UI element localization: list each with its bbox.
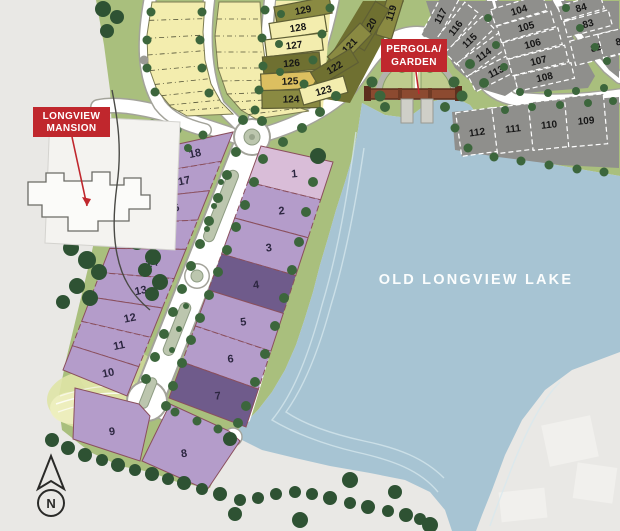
tree [275, 40, 283, 48]
tree [240, 200, 250, 210]
lake-name-label: OLD LONGVIEW LAKE [379, 272, 573, 288]
tree [100, 24, 114, 38]
tree [213, 267, 223, 277]
tree [168, 307, 178, 317]
tree [457, 91, 468, 102]
tree [375, 91, 386, 102]
svg-text:1: 1 [291, 168, 298, 181]
tree [183, 303, 189, 309]
tree [260, 349, 270, 359]
tree [297, 123, 307, 133]
tree [195, 239, 205, 249]
svg-text:2: 2 [278, 205, 285, 218]
tree [223, 432, 237, 446]
tree [199, 131, 208, 140]
tree [308, 177, 318, 187]
svg-text:5: 5 [240, 316, 247, 329]
dock-pier [421, 99, 433, 123]
tree [294, 237, 304, 247]
svg-text:LONGVIEW: LONGVIEW [43, 111, 101, 122]
tree [78, 251, 96, 269]
tree [249, 177, 259, 187]
svg-text:PERGOLA/: PERGOLA/ [386, 44, 441, 55]
site-plan-map: 1291281271261251241191201211221231171161… [0, 0, 620, 531]
tree [177, 476, 191, 490]
tree [138, 263, 152, 277]
tree [110, 10, 124, 24]
tree [501, 106, 509, 114]
tree [222, 245, 232, 255]
tree [198, 64, 207, 73]
tree [326, 4, 335, 13]
tree [306, 488, 318, 500]
tree [177, 358, 187, 368]
svg-text:11: 11 [112, 339, 126, 353]
tree [159, 329, 169, 339]
tree [270, 321, 280, 331]
tree [69, 278, 85, 294]
tree [45, 433, 59, 447]
tree [517, 157, 526, 166]
svg-text:125: 125 [281, 76, 299, 88]
tree [545, 161, 554, 170]
svg-text:7: 7 [214, 390, 221, 403]
tree [276, 68, 284, 76]
tree [603, 57, 611, 65]
tree [151, 88, 160, 97]
tree [91, 264, 107, 280]
tree [186, 261, 196, 271]
tree [544, 89, 552, 97]
tree [168, 381, 178, 391]
tree [171, 408, 180, 417]
tree [213, 487, 227, 501]
svg-text:10: 10 [101, 366, 115, 380]
tree [193, 417, 202, 426]
tree [490, 153, 499, 162]
tree [196, 483, 208, 495]
tree [145, 249, 161, 265]
tree [204, 290, 214, 300]
tree [301, 207, 311, 217]
tree [129, 464, 141, 476]
tree [609, 97, 617, 105]
tree [82, 290, 98, 306]
svg-text:17: 17 [177, 174, 191, 188]
tree [484, 14, 492, 22]
tree [234, 494, 246, 506]
svg-text:112: 112 [468, 126, 486, 139]
tree [145, 287, 159, 301]
tree [600, 84, 608, 92]
lot-112: 112 [456, 108, 499, 157]
site-plan: 1291281271261251241191201211221231171161… [0, 0, 620, 531]
tree [331, 91, 341, 101]
tree [141, 374, 151, 384]
svg-text:12: 12 [123, 311, 137, 325]
tree [573, 165, 582, 174]
tree [289, 486, 301, 498]
tree [143, 36, 152, 45]
tree [464, 144, 473, 153]
tree [214, 425, 223, 434]
tree [449, 77, 460, 88]
tree [61, 441, 75, 455]
svg-text:6: 6 [227, 353, 234, 366]
tree [342, 472, 358, 488]
tree [250, 377, 260, 387]
tree [261, 6, 270, 15]
svg-text:124: 124 [283, 94, 300, 105]
tree [259, 62, 268, 71]
tree [562, 4, 570, 12]
tree [95, 1, 111, 17]
tree [300, 80, 309, 89]
tree [279, 293, 289, 303]
compass-north-label: N [46, 496, 55, 511]
tree [177, 284, 187, 294]
tree [361, 500, 375, 514]
tree [231, 147, 241, 157]
tree [196, 36, 205, 45]
dock-pier [401, 99, 413, 123]
tree [277, 10, 285, 18]
tree [241, 401, 251, 411]
tree [258, 34, 267, 43]
tree [204, 226, 210, 232]
tree [440, 102, 450, 112]
tree [451, 124, 460, 133]
tree [186, 335, 196, 345]
tree [231, 222, 241, 232]
tree [309, 56, 318, 65]
tree [278, 137, 288, 147]
tree [150, 352, 160, 362]
tree [198, 8, 207, 17]
tree [399, 508, 413, 522]
tree [222, 170, 232, 180]
svg-text:GARDEN: GARDEN [391, 57, 437, 68]
tree [287, 265, 297, 275]
tree [600, 168, 609, 177]
tree [195, 313, 205, 323]
svg-text:MANSION: MANSION [46, 123, 96, 134]
svg-text:3: 3 [265, 242, 272, 255]
tree [382, 505, 394, 517]
tree [255, 86, 264, 95]
tree [251, 106, 260, 115]
tree [233, 418, 243, 428]
tree [315, 107, 325, 117]
tree [162, 473, 174, 485]
tree [56, 295, 70, 309]
svg-text:109: 109 [577, 115, 595, 127]
tree [211, 203, 217, 209]
tree [465, 59, 475, 69]
tree [367, 77, 378, 88]
tree [323, 491, 337, 505]
tree [318, 30, 327, 39]
tree [500, 63, 508, 71]
tree [516, 88, 524, 96]
tree [344, 497, 356, 509]
tree [270, 488, 282, 500]
svg-text:110: 110 [541, 119, 559, 132]
tree [292, 512, 308, 528]
tree [228, 507, 242, 521]
tree [576, 24, 584, 32]
tree [204, 216, 214, 226]
svg-text:126: 126 [283, 58, 301, 70]
tree [591, 43, 599, 51]
tree [252, 492, 264, 504]
svg-text:111: 111 [505, 123, 522, 136]
tree [184, 144, 192, 152]
tree [205, 89, 214, 98]
tree [111, 458, 125, 472]
tree [528, 103, 536, 111]
tree [213, 193, 223, 203]
tree [238, 115, 248, 125]
tree [479, 78, 489, 88]
tree [218, 179, 224, 185]
tree [257, 116, 267, 126]
tree [96, 454, 108, 466]
tree [78, 448, 92, 462]
tree [584, 99, 592, 107]
tree [143, 64, 152, 73]
tree [169, 347, 175, 353]
tree [258, 154, 268, 164]
svg-text:127: 127 [285, 39, 303, 52]
tree [310, 148, 326, 164]
tree [388, 485, 402, 499]
tree [145, 467, 159, 481]
lot-111: 111 [492, 103, 534, 153]
tree [147, 8, 156, 17]
tree [161, 401, 171, 411]
tree [176, 326, 182, 332]
tree [556, 101, 564, 109]
tree [492, 41, 500, 49]
tree [572, 87, 580, 95]
tree [380, 102, 390, 112]
